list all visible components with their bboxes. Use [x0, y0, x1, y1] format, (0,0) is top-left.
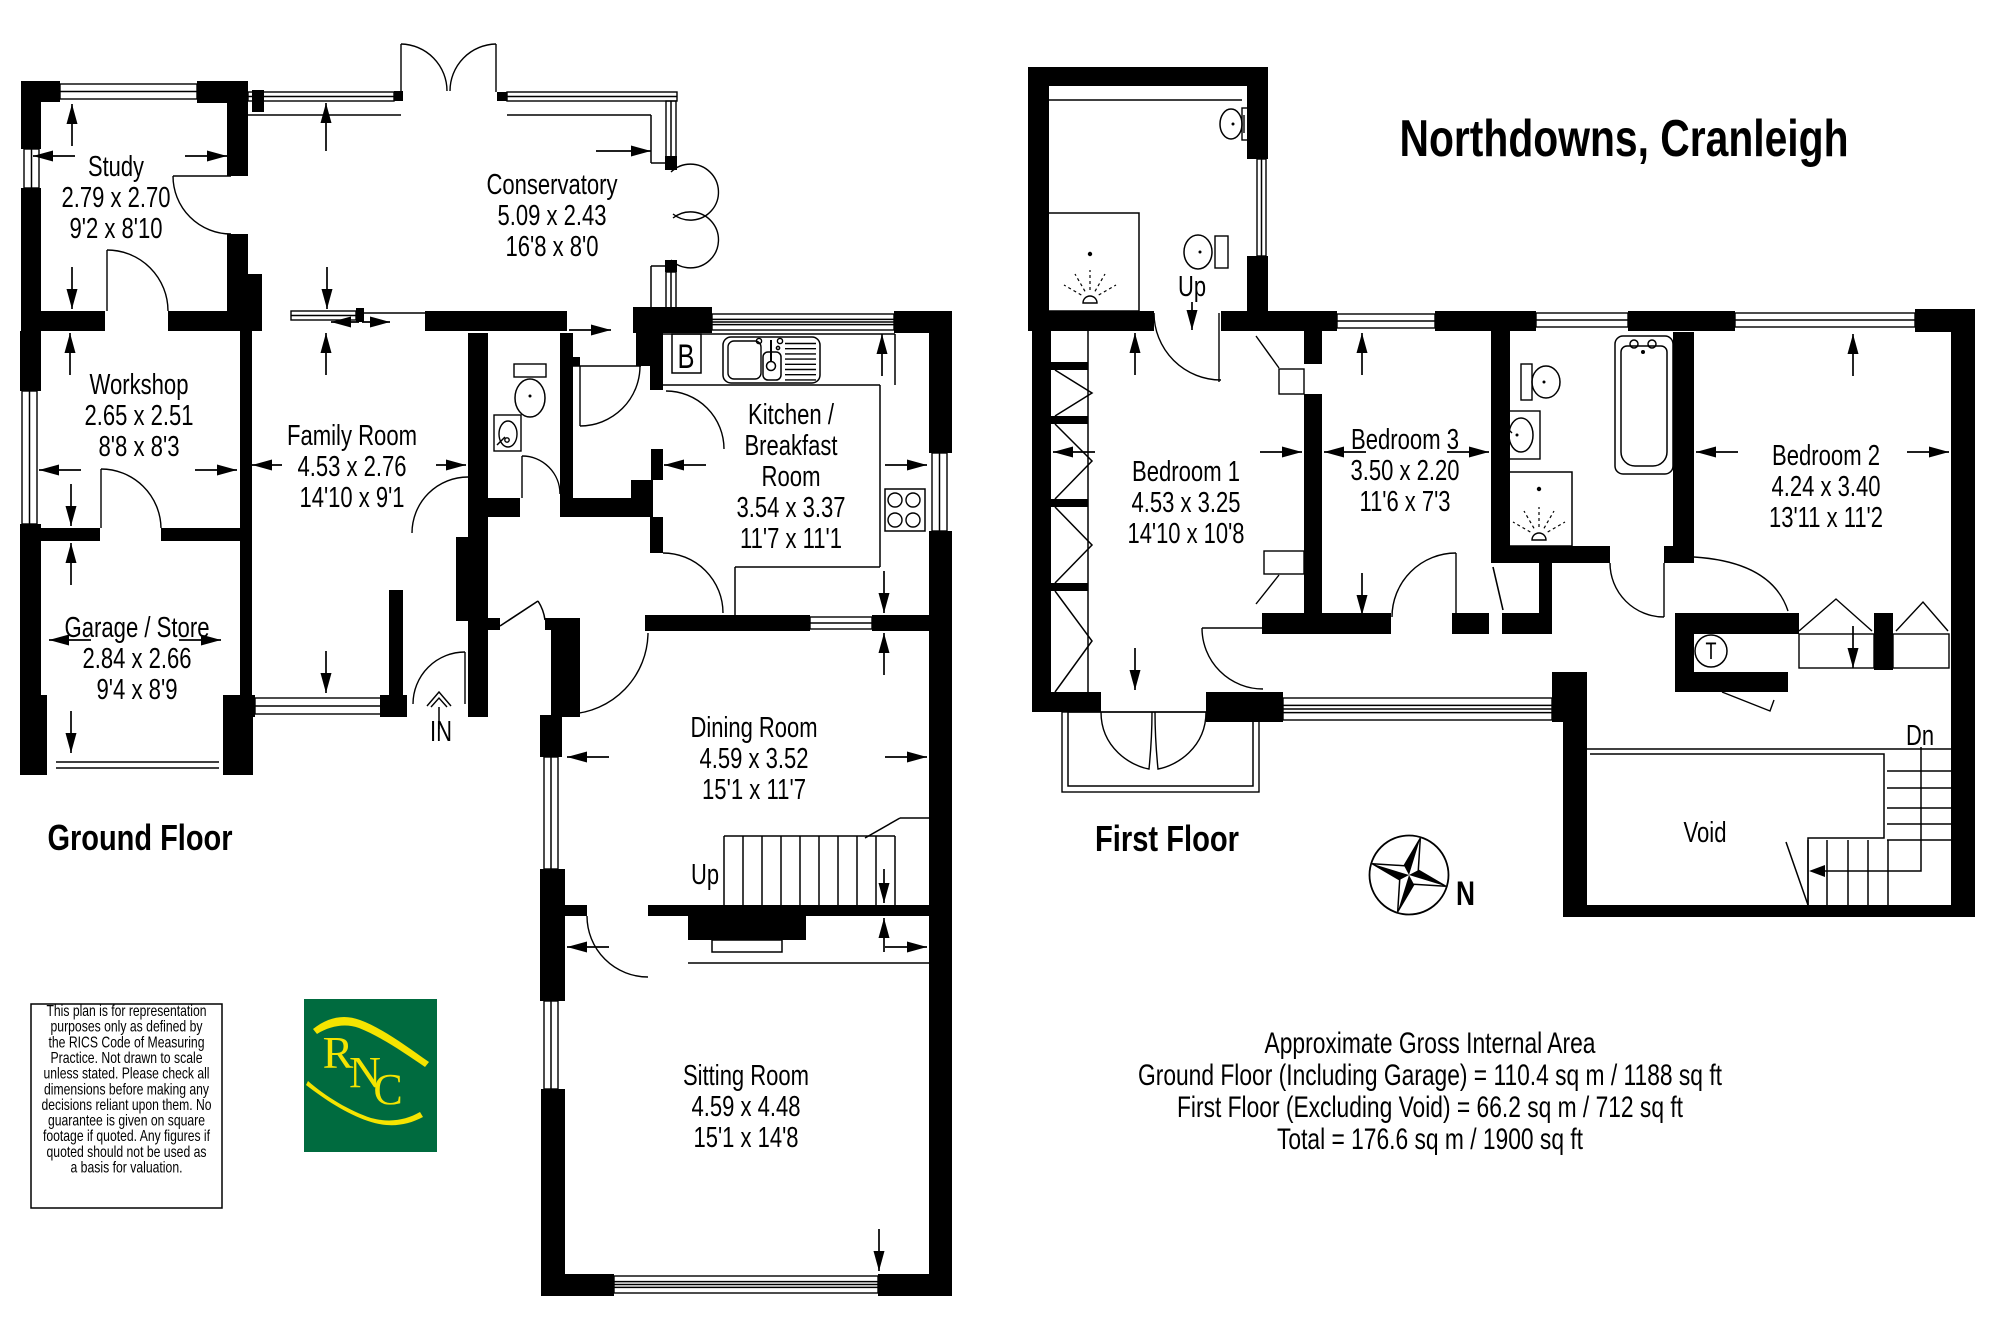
svg-text:First Floor: First Floor	[1095, 818, 1239, 859]
svg-text:9'2 x 8'10: 9'2 x 8'10	[70, 213, 163, 245]
svg-text:Total = 176.6 sq m / 1900 sq f: Total = 176.6 sq m / 1900 sq ft	[1277, 1123, 1584, 1156]
svg-text:Conservatory: Conservatory	[487, 169, 618, 201]
svg-text:Garage / Store: Garage / Store	[65, 612, 210, 644]
svg-text:a basis for valuation.: a basis for valuation.	[71, 1160, 183, 1177]
svg-text:Dining Room: Dining Room	[691, 712, 818, 744]
svg-text:4.24 x 3.40: 4.24 x 3.40	[1772, 471, 1881, 503]
svg-text:2.79 x 2.70: 2.79 x 2.70	[62, 182, 171, 214]
svg-text:the RICS Code of Measuring: the RICS Code of Measuring	[49, 1034, 205, 1051]
svg-text:4.53 x 3.25: 4.53 x 3.25	[1132, 487, 1241, 519]
svg-text:4.53 x 2.76: 4.53 x 2.76	[298, 451, 407, 483]
svg-text:Up: Up	[691, 859, 719, 891]
svg-text:4.59 x 4.48: 4.59 x 4.48	[692, 1091, 801, 1123]
svg-text:C: C	[373, 1065, 402, 1114]
svg-text:First Floor (Excluding Void) =: First Floor (Excluding Void) = 66.2 sq m…	[1177, 1091, 1684, 1124]
svg-text:3.54 x 3.37: 3.54 x 3.37	[737, 492, 846, 524]
svg-text:Void: Void	[1684, 817, 1727, 849]
svg-text:8'8 x 8'3: 8'8 x 8'3	[99, 431, 180, 463]
svg-text:This plan is for representatio: This plan is for representation	[47, 1003, 207, 1020]
svg-text:IN: IN	[430, 716, 452, 748]
svg-text:2.65 x 2.51: 2.65 x 2.51	[85, 400, 194, 432]
svg-text:decisions reliant upon them. N: decisions reliant upon them. No	[42, 1097, 212, 1114]
svg-text:Family Room: Family Room	[287, 420, 417, 452]
svg-text:quoted should not be used as: quoted should not be used as	[47, 1144, 207, 1161]
svg-text:Up: Up	[1178, 271, 1206, 303]
svg-text:5.09 x 2.43: 5.09 x 2.43	[498, 200, 607, 232]
svg-text:15'1 x 11'7: 15'1 x 11'7	[702, 774, 806, 806]
svg-text:Breakfast: Breakfast	[745, 430, 838, 462]
svg-text:14'10 x 10'8: 14'10 x 10'8	[1128, 518, 1245, 550]
svg-text:footage if quoted. Any figures: footage if quoted. Any figures if	[43, 1128, 210, 1145]
svg-text:3.50 x 2.20: 3.50 x 2.20	[1351, 455, 1460, 487]
svg-text:11'7 x 11'1: 11'7 x 11'1	[740, 523, 842, 555]
svg-text:9'4 x 8'9: 9'4 x 8'9	[97, 674, 178, 706]
svg-text:N: N	[1456, 875, 1475, 913]
svg-text:guarantee is given on square: guarantee is given on square	[48, 1113, 205, 1130]
svg-text:Northdowns, Cranleigh: Northdowns, Cranleigh	[1400, 110, 1849, 168]
svg-text:16'8 x 8'0: 16'8 x 8'0	[506, 231, 599, 263]
svg-text:purposes only as defined by: purposes only as defined by	[51, 1019, 203, 1036]
svg-text:2.84 x 2.66: 2.84 x 2.66	[83, 643, 192, 675]
svg-text:Bedroom 1: Bedroom 1	[1132, 456, 1240, 488]
svg-text:Approximate Gross Internal Are: Approximate Gross Internal Area	[1265, 1027, 1596, 1060]
svg-text:T: T	[1706, 638, 1717, 665]
svg-text:Ground Floor: Ground Floor	[48, 817, 233, 858]
svg-text:Bedroom 2: Bedroom 2	[1772, 440, 1880, 472]
svg-text:15'1 x 14'8: 15'1 x 14'8	[694, 1122, 799, 1154]
svg-text:Sitting Room: Sitting Room	[683, 1060, 809, 1092]
svg-text:Bedroom 3: Bedroom 3	[1351, 424, 1459, 456]
svg-text:Practice. Not drawn to scale: Practice. Not drawn to scale	[51, 1050, 203, 1067]
svg-text:Dn: Dn	[1906, 720, 1934, 752]
svg-text:Study: Study	[88, 151, 144, 183]
svg-text:dimensions before making any: dimensions before making any	[44, 1081, 209, 1098]
svg-text:Room: Room	[762, 461, 821, 493]
svg-text:B: B	[678, 338, 695, 376]
svg-text:4.59 x 3.52: 4.59 x 3.52	[700, 743, 809, 775]
svg-text:Workshop: Workshop	[90, 369, 189, 401]
svg-text:11'6 x 7'3: 11'6 x 7'3	[1360, 486, 1451, 518]
svg-text:Ground Floor (Including Garage: Ground Floor (Including Garage) = 110.4 …	[1138, 1059, 1722, 1092]
svg-text:13'11 x 11'2: 13'11 x 11'2	[1769, 502, 1883, 534]
svg-text:14'10 x 9'1: 14'10 x 9'1	[300, 482, 405, 514]
svg-text:unless stated. Please check al: unless stated. Please check all	[44, 1066, 210, 1083]
svg-text:Kitchen /: Kitchen /	[748, 399, 835, 431]
